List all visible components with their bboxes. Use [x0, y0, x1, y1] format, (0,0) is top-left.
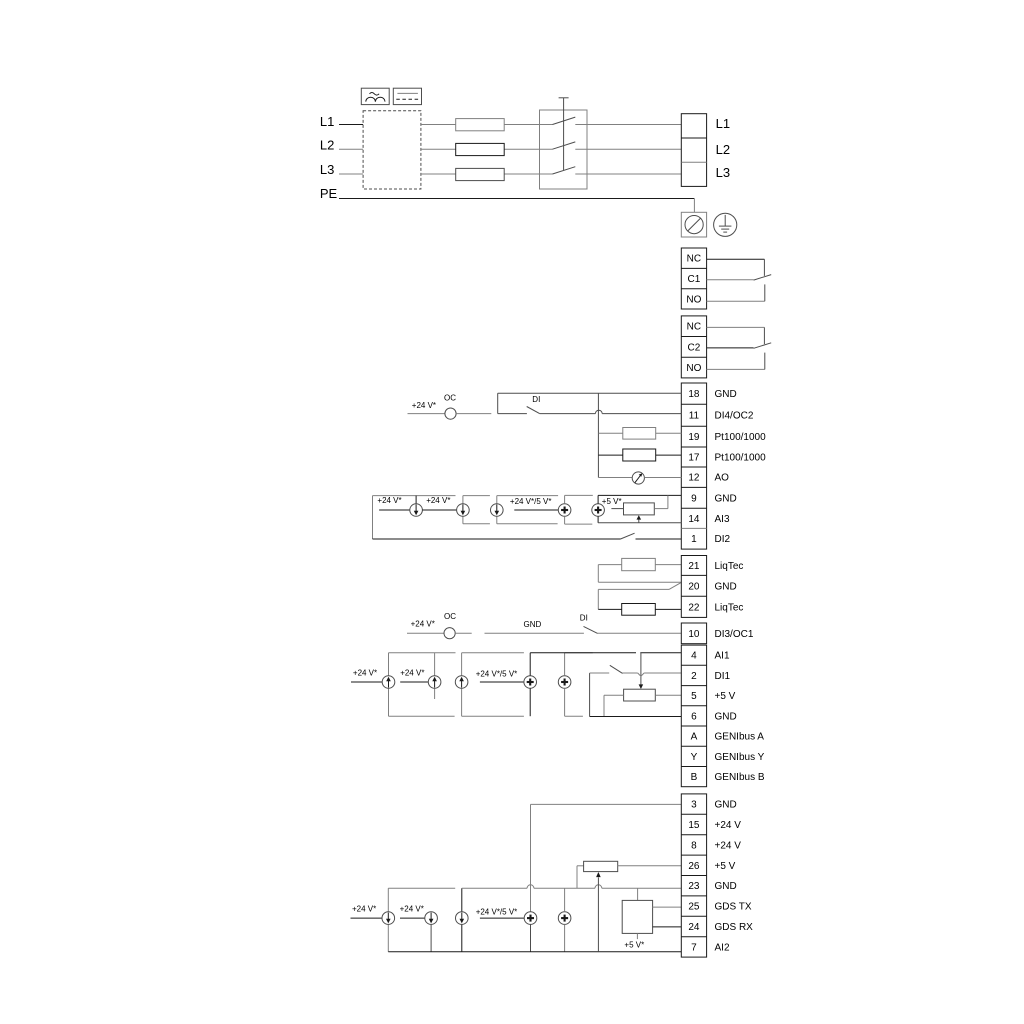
svg-text:B: B [691, 772, 698, 783]
svg-text:26: 26 [688, 861, 700, 872]
svg-text:+5 V*: +5 V* [602, 497, 622, 506]
svg-text:GENIbus A: GENIbus A [715, 732, 765, 743]
svg-text:AI1: AI1 [715, 651, 730, 662]
svg-text:GND: GND [715, 711, 737, 722]
svg-text:25: 25 [688, 902, 700, 913]
svg-text:Pt100/1000: Pt100/1000 [715, 453, 767, 464]
svg-text:+5 V: +5 V [715, 691, 736, 702]
svg-text:10: 10 [688, 629, 700, 640]
svg-text:Pt100/1000: Pt100/1000 [715, 432, 767, 443]
svg-text:GDS TX: GDS TX [715, 902, 752, 913]
svg-text:L3: L3 [320, 162, 334, 177]
svg-text:GND: GND [715, 581, 737, 592]
svg-text:DI: DI [532, 395, 540, 404]
svg-text:+24 V*/5 V*: +24 V*/5 V* [476, 669, 518, 678]
svg-text:24: 24 [688, 922, 700, 933]
svg-text:DI4/OC2: DI4/OC2 [715, 411, 754, 422]
svg-text:C1: C1 [688, 274, 701, 285]
svg-text:NO: NO [686, 295, 701, 306]
svg-text:22: 22 [688, 602, 700, 613]
svg-text:GND: GND [715, 881, 737, 892]
svg-text:DI2: DI2 [715, 534, 731, 545]
svg-text:+24 V*: +24 V* [377, 496, 401, 505]
svg-text:NC: NC [687, 322, 701, 333]
svg-text:NC: NC [687, 254, 701, 265]
svg-text:+5 V: +5 V [715, 861, 736, 872]
svg-text:GND: GND [524, 620, 542, 629]
svg-text:21: 21 [688, 561, 700, 572]
svg-text:20: 20 [688, 581, 700, 592]
svg-text:NO: NO [686, 363, 701, 374]
svg-text:6: 6 [691, 711, 697, 722]
svg-text:14: 14 [688, 514, 700, 525]
svg-text:+24 V*: +24 V* [353, 668, 377, 677]
svg-text:19: 19 [688, 432, 700, 443]
svg-text:2: 2 [691, 671, 697, 682]
svg-text:+24 V*: +24 V* [400, 668, 424, 677]
svg-text:11: 11 [689, 411, 700, 422]
svg-text:GND: GND [715, 389, 737, 400]
svg-text:PE: PE [320, 186, 338, 201]
svg-text:+24 V*: +24 V* [400, 905, 424, 914]
svg-text:GENIbus Y: GENIbus Y [715, 752, 765, 763]
svg-text:AI3: AI3 [715, 514, 730, 525]
svg-text:15: 15 [688, 820, 700, 831]
svg-text:9: 9 [691, 493, 697, 504]
svg-text:GENIbus B: GENIbus B [715, 772, 765, 783]
svg-text:4: 4 [691, 651, 697, 662]
svg-text:3: 3 [691, 800, 697, 811]
svg-text:12: 12 [688, 473, 700, 484]
svg-text:+24 V*/5 V*: +24 V*/5 V* [510, 497, 552, 506]
svg-text:L2: L2 [320, 137, 334, 152]
svg-text:GND: GND [715, 493, 737, 504]
svg-text:DI: DI [580, 613, 588, 622]
svg-text:5: 5 [691, 691, 697, 702]
svg-text:23: 23 [688, 881, 700, 892]
svg-text:8: 8 [691, 840, 697, 851]
svg-text:+24 V: +24 V [715, 840, 742, 851]
svg-text:+24 V*: +24 V* [411, 620, 435, 629]
svg-text:DI3/OC1: DI3/OC1 [715, 629, 754, 640]
svg-text:18: 18 [688, 389, 700, 400]
svg-text:+24 V*: +24 V* [426, 496, 450, 505]
svg-text:17: 17 [688, 453, 700, 464]
svg-text:+24 V*: +24 V* [412, 401, 436, 410]
svg-text:AO: AO [715, 473, 730, 484]
svg-text:Y: Y [691, 752, 698, 763]
svg-text:AI2: AI2 [715, 942, 730, 953]
svg-text:OC: OC [444, 394, 456, 403]
svg-text:OC: OC [444, 612, 456, 621]
svg-text:+24 V: +24 V [715, 820, 742, 831]
svg-text:LiqTec: LiqTec [715, 602, 744, 613]
svg-text:L1: L1 [716, 116, 730, 131]
svg-text:C2: C2 [688, 342, 701, 353]
svg-text:L3: L3 [716, 165, 730, 180]
svg-text:L1: L1 [320, 114, 334, 129]
svg-text:+24 V*: +24 V* [352, 905, 376, 914]
svg-text:LiqTec: LiqTec [715, 561, 744, 572]
svg-text:+24 V*/5 V*: +24 V*/5 V* [476, 908, 518, 917]
svg-text:DI1: DI1 [715, 671, 731, 682]
svg-text:A: A [691, 732, 698, 743]
svg-text:7: 7 [691, 942, 697, 953]
svg-text:GDS RX: GDS RX [715, 922, 754, 933]
svg-text:+5 V*: +5 V* [624, 941, 644, 950]
svg-text:GND: GND [715, 800, 737, 811]
svg-text:L2: L2 [716, 142, 730, 157]
svg-text:1: 1 [691, 534, 697, 545]
